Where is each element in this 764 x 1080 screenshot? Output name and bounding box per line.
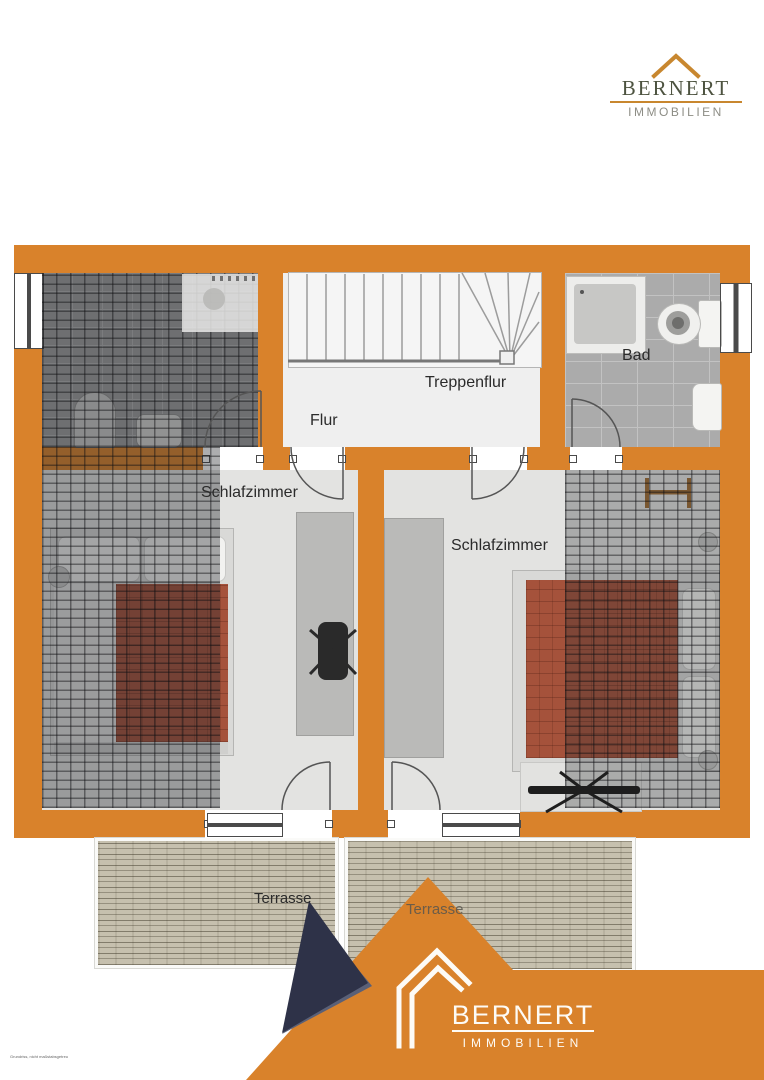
window bbox=[720, 283, 752, 353]
fine-print: Grundriss, nicht maßstabsgetreu bbox=[10, 1054, 68, 1059]
wall-right bbox=[720, 353, 750, 838]
room-label-flur: Flur bbox=[310, 412, 338, 430]
bedside-lamp bbox=[698, 750, 718, 770]
pillow bbox=[58, 536, 140, 582]
wall-bathleft-hall bbox=[258, 273, 283, 447]
terrace-right bbox=[345, 838, 635, 972]
wardrobe bbox=[384, 518, 444, 758]
wall-hall-bad bbox=[540, 273, 565, 447]
bed-sheet bbox=[54, 584, 116, 742]
desk-right bbox=[520, 762, 642, 812]
wall-left bbox=[14, 349, 42, 838]
bedside-lamp bbox=[698, 532, 718, 552]
wall-bedroom-divider bbox=[358, 470, 384, 810]
wall-mid-4 bbox=[527, 447, 570, 470]
shower-drain bbox=[580, 290, 584, 294]
page: BERNERT IMMOBILIEN bbox=[0, 0, 764, 1080]
room-label-treppenflur: Treppenflur bbox=[425, 374, 506, 392]
wall-top bbox=[14, 245, 750, 273]
washbasin bbox=[692, 383, 722, 431]
window bbox=[207, 813, 283, 837]
pillow bbox=[682, 676, 716, 758]
room-label-bad: Bad bbox=[622, 347, 650, 365]
header-brand: BERNERT bbox=[600, 76, 752, 101]
blanket-right bbox=[526, 580, 678, 758]
bathtub bbox=[74, 392, 116, 448]
door-opening-bath-left bbox=[203, 447, 263, 470]
shower-head-icon bbox=[203, 288, 225, 310]
wall-mid-3 bbox=[345, 447, 470, 470]
pillow bbox=[682, 588, 716, 670]
header-brand-underline bbox=[610, 101, 742, 103]
wall-bottom-3 bbox=[520, 810, 750, 838]
shelf-items bbox=[212, 276, 256, 281]
window bbox=[442, 813, 520, 837]
terrace-label-right: Terrasse bbox=[406, 901, 464, 918]
pillow bbox=[144, 536, 226, 582]
staircase bbox=[288, 272, 542, 368]
window bbox=[14, 273, 44, 349]
floorplan: Treppenflur Flur Bad Schlafzimmer Schlaf… bbox=[0, 0, 764, 1080]
room-label-schlafzimmer-right: Schlafzimmer bbox=[451, 537, 548, 555]
wall-mid-1 bbox=[42, 447, 203, 470]
blanket-left bbox=[116, 584, 228, 742]
desk-left bbox=[296, 512, 354, 736]
header-tagline: IMMOBILIEN bbox=[600, 105, 752, 119]
room-label-schlafzimmer-left: Schlafzimmer bbox=[201, 484, 298, 502]
header-logo: BERNERT IMMOBILIEN bbox=[600, 50, 756, 125]
wall-bottom-1 bbox=[14, 810, 205, 838]
terrace-label-left: Terrasse bbox=[254, 890, 312, 907]
toilet-tank bbox=[698, 300, 722, 348]
wall-mid-2 bbox=[263, 447, 290, 470]
door-opening-bedroom-left bbox=[290, 447, 345, 470]
door-opening-bad bbox=[570, 447, 622, 470]
sink bbox=[136, 414, 182, 448]
side-table bbox=[645, 478, 691, 508]
wall-mid-5 bbox=[622, 447, 720, 470]
toilet-bowl-center bbox=[672, 317, 684, 329]
door-opening-bedroom-right bbox=[470, 447, 527, 470]
wall-bottom-2 bbox=[332, 810, 388, 838]
bed-footboard bbox=[54, 742, 228, 754]
bedside-lamp bbox=[48, 566, 70, 588]
wall-right-stub bbox=[720, 273, 750, 283]
